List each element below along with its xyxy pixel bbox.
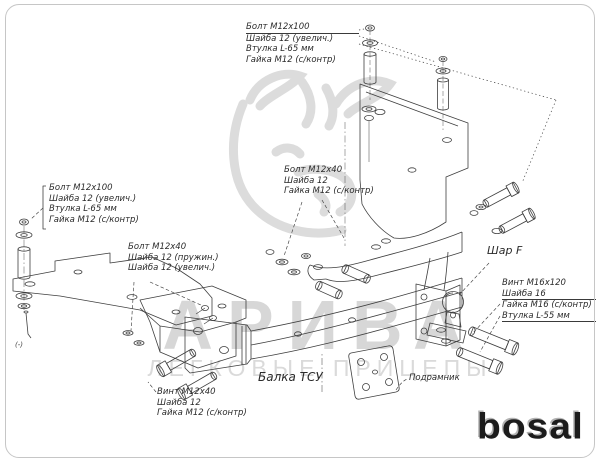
label-top-bolt-kit: Болт М12х100 Шайба 12 (увелич.) Втулка L… <box>246 22 359 65</box>
label-line: Гайка М16 (с/контр) <box>502 300 596 311</box>
label-bottomleft-screw-kit: Винт М12х40 Шайба 12 Гайка М12 (с/контр) <box>157 387 247 419</box>
label-ball-screw-kit: Винт М16х120 Шайба 16 Гайка М16 (с/контр… <box>502 278 596 322</box>
label-line: Винт М12х40 <box>157 387 247 398</box>
label-beam: Балка ТСУ <box>258 372 323 383</box>
left-pin-mark: (-) <box>15 340 23 351</box>
label-line: Втулка L-65 мм <box>246 44 359 55</box>
label-line: Гайка М12 (с/контр) <box>246 55 359 66</box>
left-label-bracket <box>43 186 46 229</box>
label-line: Шайба 12 (увелич.) <box>246 34 359 45</box>
diagram-canvas: АРИВА ЛЕГКОВЫЕ ПРИЦЕПЫ <box>0 0 600 462</box>
label-left-bolt-kit: Болт М12х100 Шайба 12 (увелич.) Втулка L… <box>49 183 139 225</box>
label-subframe: Подрамник <box>409 373 460 384</box>
label-line: Шайба 12 (увелич.) <box>49 194 139 205</box>
label-line: Гайка М12 (с/контр) <box>49 215 139 226</box>
top-frame-bracket <box>360 84 468 238</box>
label-line: Винт М16х120 <box>502 278 596 289</box>
right-small-bolts <box>470 181 536 236</box>
label-line: Болт М12х40 <box>284 165 374 176</box>
label-line: Втулка L-55 мм <box>502 311 596 323</box>
top-long-bolts <box>363 25 451 130</box>
label-line: Болт М12х100 <box>246 22 359 34</box>
watermark-brand: АРИВА <box>162 286 477 364</box>
bosal-logo: bosal <box>477 407 584 447</box>
label-line: Гайка М12 (с/контр) <box>157 408 247 419</box>
label-line: Шайба 12 (увелич.) <box>128 263 219 274</box>
gooseneck-member <box>308 232 462 290</box>
label-midleft-bolt-kit: Болт М12х40 Шайба 12 (пружин.) Шайба 12 … <box>128 242 219 274</box>
label-line: Болт М12х100 <box>49 183 139 194</box>
top-label-leaders <box>359 29 556 183</box>
label-line: Болт М12х40 <box>128 242 219 253</box>
label-line: Шайба 12 (пружин.) <box>128 253 219 264</box>
label-line: Шайба 16 <box>502 289 596 301</box>
label-line: Шайба 12 <box>284 176 374 187</box>
label-ball-header: Шар F <box>487 246 539 257</box>
left-bolt-stack <box>16 219 32 338</box>
label-line: Гайка М12 (с/контр) <box>284 186 374 197</box>
brand-watermark-text: АРИВА ЛЕГКОВЫЕ ПРИЦЕПЫ <box>147 286 492 381</box>
bull-logo-watermark <box>233 74 390 233</box>
hitch-assembly-drawing: АРИВА ЛЕГКОВЫЕ ПРИЦЕПЫ <box>0 0 600 462</box>
label-line: Шайба 12 <box>157 398 247 409</box>
label-center-bolt-kit: Болт М12х40 Шайба 12 Гайка М12 (с/контр) <box>284 165 374 197</box>
label-line: Втулка L-65 мм <box>49 204 139 215</box>
